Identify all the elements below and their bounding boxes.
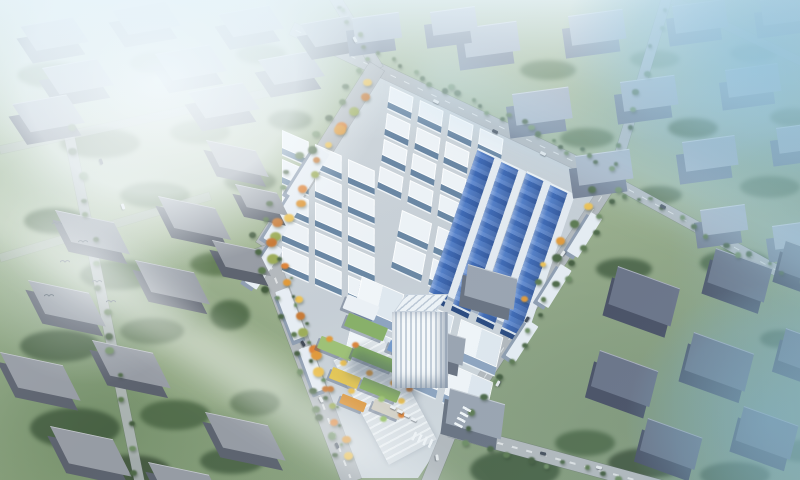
- tower-facade: [392, 312, 448, 388]
- tree: [340, 360, 347, 366]
- tree: [295, 152, 304, 159]
- tree: [81, 199, 86, 203]
- context-building-block: [700, 204, 748, 236]
- context-building-block: [776, 122, 800, 154]
- vegetation-blob: [520, 60, 576, 80]
- tree: [600, 471, 606, 476]
- context-building-block: [352, 12, 402, 44]
- vegetation-blob: [668, 118, 718, 138]
- tree: [332, 453, 337, 457]
- tree: [298, 185, 307, 192]
- tree: [609, 199, 615, 204]
- tree: [454, 90, 461, 96]
- tree: [326, 336, 333, 342]
- context-building-block: [112, 1, 181, 35]
- tree: [363, 79, 372, 87]
- tree: [118, 397, 123, 402]
- tree: [723, 243, 729, 248]
- tree: [522, 343, 528, 348]
- tree: [584, 203, 592, 210]
- tree: [321, 378, 326, 382]
- tree: [295, 296, 303, 303]
- tree: [703, 234, 709, 239]
- tree: [487, 446, 494, 452]
- tree: [398, 398, 405, 404]
- vegetation-blob: [268, 110, 312, 130]
- tree: [552, 281, 560, 288]
- vegetation-blob: [740, 176, 800, 198]
- tree: [398, 64, 403, 68]
- tree: [648, 44, 652, 47]
- tree: [272, 218, 283, 227]
- context-building-block: [684, 332, 754, 392]
- car: [98, 158, 103, 165]
- tree: [779, 271, 784, 275]
- tree: [500, 117, 505, 121]
- context-building-block: [725, 63, 781, 98]
- tree: [565, 276, 572, 282]
- vegetation-blob: [210, 300, 250, 330]
- tree: [420, 76, 425, 81]
- tree: [358, 32, 363, 36]
- tree: [746, 251, 753, 257]
- tree: [79, 172, 88, 179]
- tree: [535, 131, 542, 137]
- tree: [82, 212, 88, 217]
- tree: [283, 170, 288, 174]
- tree: [249, 232, 256, 238]
- tree: [560, 460, 565, 465]
- tree: [105, 333, 113, 340]
- tree: [94, 285, 101, 291]
- tree: [129, 446, 135, 451]
- tree: [609, 166, 615, 171]
- vegetation-blob: [230, 390, 280, 416]
- tree: [93, 237, 99, 242]
- tree: [322, 386, 329, 392]
- vegetation-blob: [700, 462, 770, 480]
- bird: [78, 238, 88, 244]
- tree: [593, 230, 599, 235]
- tree: [311, 171, 319, 178]
- tower-roof: [394, 294, 449, 312]
- tree: [616, 143, 621, 147]
- tree: [68, 124, 76, 131]
- vegetation-blob: [120, 318, 184, 344]
- bird: [52, 220, 62, 226]
- bird: [60, 258, 70, 264]
- tree: [426, 82, 432, 87]
- tree: [338, 424, 341, 427]
- car: [495, 380, 501, 387]
- tree: [309, 388, 316, 394]
- tree: [472, 98, 476, 102]
- context-building-block: [760, 0, 800, 26]
- tree: [340, 443, 343, 446]
- tree: [378, 396, 385, 402]
- tree: [392, 57, 396, 61]
- tree: [342, 436, 351, 443]
- tree: [503, 452, 510, 458]
- tree: [570, 220, 579, 228]
- tree: [356, 68, 362, 73]
- tree: [448, 84, 454, 90]
- tree: [376, 51, 380, 54]
- tree: [632, 89, 638, 94]
- tree: [261, 286, 270, 293]
- context-building-block: [188, 82, 260, 118]
- tree: [541, 297, 546, 301]
- tree: [544, 464, 549, 468]
- bird: [106, 298, 116, 304]
- context-building-block: [20, 17, 89, 51]
- tree: [587, 153, 592, 158]
- context-building-block: [155, 44, 227, 80]
- tree: [691, 224, 696, 229]
- tree: [538, 313, 543, 318]
- tree: [580, 245, 587, 251]
- context-building-block: [512, 86, 573, 125]
- tree: [568, 260, 575, 266]
- context-building-block: [735, 406, 798, 460]
- tree: [266, 201, 272, 206]
- tree: [442, 88, 448, 93]
- tree: [344, 452, 353, 460]
- tree: [380, 416, 387, 422]
- context-building-block: [591, 350, 658, 407]
- tree: [296, 312, 305, 320]
- tree: [292, 295, 295, 298]
- tree: [312, 406, 320, 413]
- tree: [349, 107, 359, 116]
- tree: [648, 197, 652, 201]
- tree: [528, 125, 534, 130]
- bird: [92, 278, 102, 284]
- tree: [341, 8, 345, 12]
- office-tower: [392, 294, 448, 388]
- tree: [644, 71, 651, 77]
- tree: [281, 263, 288, 269]
- tree: [622, 194, 627, 198]
- tree: [298, 328, 308, 336]
- tree: [528, 457, 536, 464]
- tree: [466, 426, 471, 430]
- tree: [328, 432, 337, 439]
- tree: [735, 252, 741, 258]
- tree: [506, 113, 512, 118]
- context-building-block: [672, 0, 728, 34]
- tree: [614, 162, 619, 166]
- context-building-block: [568, 9, 627, 46]
- tree: [339, 99, 346, 105]
- tree: [556, 237, 565, 245]
- tree: [580, 147, 585, 151]
- tree: [130, 470, 137, 476]
- tree: [660, 26, 664, 30]
- aerial-render-scene: [0, 0, 800, 480]
- tree: [352, 342, 359, 348]
- tree: [308, 146, 316, 153]
- tree: [336, 406, 339, 409]
- bird: [44, 292, 54, 298]
- context-building-block: [682, 135, 739, 172]
- tree: [315, 414, 323, 421]
- tree: [342, 84, 348, 89]
- context-building-block: [575, 149, 634, 186]
- tree: [558, 145, 562, 149]
- tree: [296, 200, 305, 208]
- tree: [280, 185, 286, 190]
- vegetation-blob: [140, 400, 210, 430]
- vegetation-blob: [555, 430, 615, 456]
- tree: [312, 131, 320, 138]
- vegetation-blob: [20, 330, 100, 362]
- tree: [334, 125, 345, 135]
- tree: [105, 347, 114, 354]
- car: [435, 454, 439, 460]
- tree: [552, 139, 556, 142]
- tree: [348, 388, 355, 394]
- tree: [278, 314, 283, 319]
- context-building-block: [218, 5, 284, 37]
- tree: [615, 187, 622, 193]
- context-building-block: [608, 266, 680, 326]
- tree: [522, 119, 528, 124]
- vegetation-blob: [170, 120, 230, 144]
- vegetation-blob: [560, 128, 614, 148]
- tree: [509, 359, 515, 364]
- tree: [283, 279, 291, 286]
- tree: [535, 279, 542, 285]
- tree: [93, 261, 100, 267]
- tree: [311, 351, 322, 360]
- tree: [478, 104, 483, 108]
- tree: [680, 215, 685, 219]
- tree: [325, 115, 332, 121]
- tree: [129, 421, 135, 426]
- tree: [294, 303, 298, 306]
- tree: [615, 476, 621, 480]
- tree: [258, 267, 266, 274]
- tree: [462, 440, 469, 446]
- tree: [484, 111, 489, 115]
- tree: [266, 238, 277, 247]
- tree: [414, 70, 419, 74]
